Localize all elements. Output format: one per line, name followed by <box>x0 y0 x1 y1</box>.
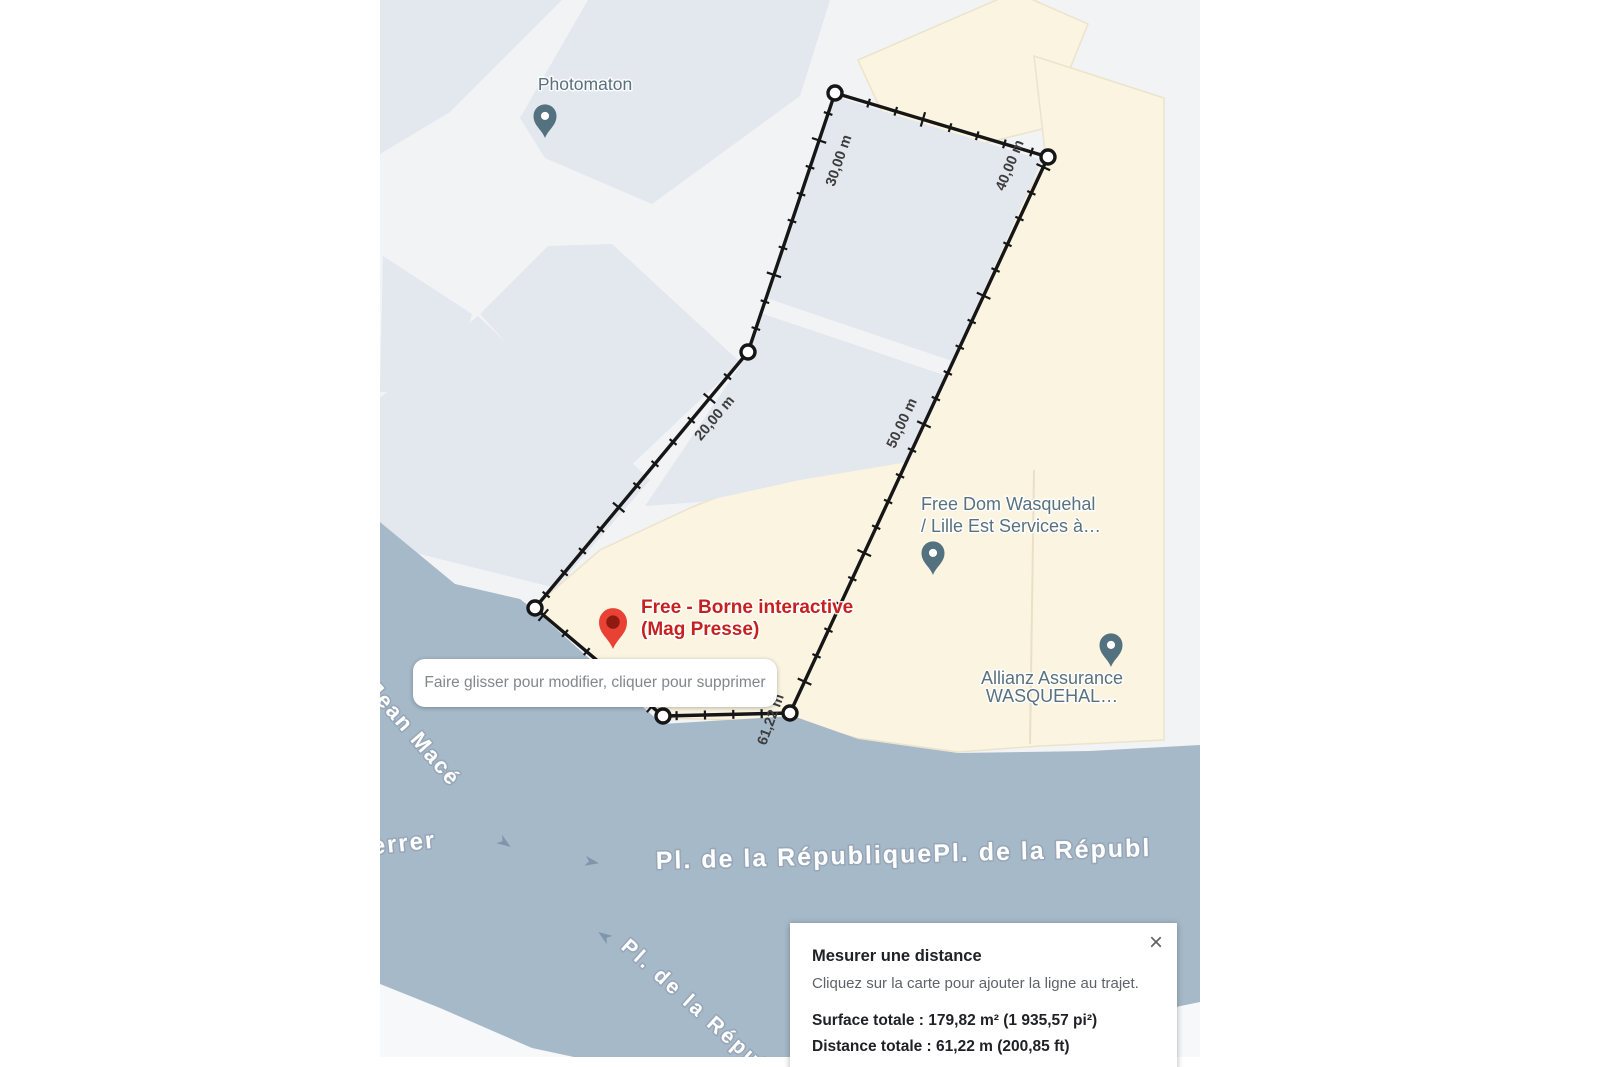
panel-title: Mesurer une distance <box>812 947 1155 966</box>
path-vertex-handle[interactable] <box>1041 150 1055 164</box>
screenshot-stage: Jean MacéFerrerPl. de la RépubliquePl. d… <box>0 0 1600 1067</box>
pin-hole <box>1107 641 1115 649</box>
path-vertex-handle[interactable] <box>783 706 797 720</box>
path-vertex-handle[interactable] <box>741 345 755 359</box>
panel-subtitle: Cliquez sur la carte pour ajouter la lig… <box>812 975 1155 992</box>
path-vertex-handle[interactable] <box>828 86 842 100</box>
tooltip-text: Faire glisser pour modifier, cliquer pou… <box>424 674 765 692</box>
pin-hole <box>929 549 937 557</box>
free-dom-label: Free Dom Wasquehal <box>921 494 1095 514</box>
close-icon[interactable]: × <box>1149 931 1163 955</box>
pin-hole <box>541 112 549 120</box>
path-vertex-handle[interactable] <box>528 601 542 615</box>
measure-distance-panel: × Mesurer une distance Cliquez sur la ca… <box>790 923 1177 1067</box>
path-vertex-handle[interactable] <box>656 709 670 723</box>
map-canvas[interactable]: Jean MacéFerrerPl. de la RépubliquePl. d… <box>380 0 1200 1057</box>
free-borne-label: (Mag Presse) <box>641 619 759 640</box>
photomaton-label: Photomaton <box>538 74 632 94</box>
allianz-label: WASQUEHAL… <box>986 686 1118 706</box>
pin-hole <box>606 615 619 628</box>
free-borne-label: Free - Borne interactive <box>641 597 853 618</box>
drag-edit-tooltip: Faire glisser pour modifier, cliquer pou… <box>413 659 777 707</box>
allianz-label: Allianz Assurance <box>981 668 1123 688</box>
distance-total: Distance totale : 61,22 m (200,85 ft) <box>812 1038 1155 1056</box>
surface-total: Surface totale : 179,82 m² (1 935,57 pi²… <box>812 1012 1155 1030</box>
free-dom-label: / Lille Est Services à… <box>921 516 1101 536</box>
